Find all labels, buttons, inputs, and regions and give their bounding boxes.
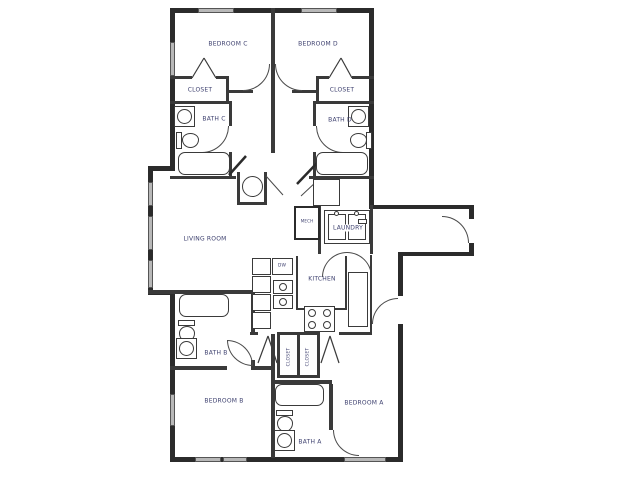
wall xyxy=(398,252,474,256)
room-label-closet-hall-1: CLOSET xyxy=(287,348,292,367)
wall xyxy=(271,8,275,153)
window xyxy=(195,457,221,462)
bathtub-d xyxy=(316,152,368,175)
mech-chase xyxy=(313,179,340,206)
wall xyxy=(264,172,267,205)
room-label-bath-b: BATH B xyxy=(204,350,227,357)
room-label-bath-c: BATH C xyxy=(202,116,225,123)
wall xyxy=(313,101,316,126)
wall xyxy=(297,334,300,378)
window xyxy=(170,42,175,76)
water-heater xyxy=(242,176,263,197)
door-arc xyxy=(322,252,347,277)
room-label-closet-c: CLOSET xyxy=(188,87,213,94)
wall xyxy=(277,375,320,378)
wall xyxy=(237,172,240,205)
floor-plan: BEDROOM C BEDROOM D CLOSET CLOSET BATH C… xyxy=(0,0,640,480)
entry-door-arc xyxy=(442,216,469,243)
kitchen-cabinet xyxy=(252,294,271,311)
room-label-mech: MECH xyxy=(301,219,314,224)
window xyxy=(198,8,234,13)
counter-edge xyxy=(370,255,372,334)
kitchen-cabinet xyxy=(252,312,271,329)
door-arc xyxy=(333,430,359,456)
counter-edge xyxy=(296,256,298,310)
room-label-bath-d: BATH D xyxy=(328,117,352,124)
burner xyxy=(323,321,331,329)
wall xyxy=(329,384,333,430)
window xyxy=(170,394,175,426)
kitchen-sink-basin xyxy=(279,283,287,291)
room-label-bedroom-c: BEDROOM C xyxy=(208,41,247,48)
window xyxy=(301,8,337,13)
wall xyxy=(469,205,474,219)
washer-knob xyxy=(334,211,339,216)
room-label-bedroom-a: BEDROOM A xyxy=(344,400,383,407)
wall xyxy=(316,101,374,104)
wall xyxy=(277,334,280,378)
window xyxy=(148,260,153,288)
room-label-laundry: LAUNDRY xyxy=(332,225,364,232)
door-arc xyxy=(316,126,343,153)
room-label-bedroom-b: BEDROOM B xyxy=(204,398,243,405)
wall xyxy=(170,292,175,462)
sink-c-basin xyxy=(177,109,192,124)
dryer-knob xyxy=(354,211,359,216)
bathtub-b xyxy=(179,294,229,317)
wall xyxy=(170,366,227,370)
door-arc xyxy=(275,64,302,91)
door-arc xyxy=(243,64,270,91)
laundry-control-panel xyxy=(358,219,367,224)
sink-d-basin xyxy=(351,109,366,124)
wall xyxy=(352,76,374,79)
toilet-d xyxy=(350,133,367,148)
window xyxy=(344,457,386,462)
room-label-bath-a: BATH A xyxy=(298,439,321,446)
sink-b-basin xyxy=(179,341,194,356)
door-arc xyxy=(372,298,398,324)
label-dishwasher: DW xyxy=(278,264,286,269)
refrigerator xyxy=(348,272,368,327)
wall xyxy=(226,90,253,93)
wall xyxy=(398,324,403,462)
bathtub-a xyxy=(275,384,324,406)
window xyxy=(223,457,247,462)
wall xyxy=(398,252,403,296)
room-label-closet-d: CLOSET xyxy=(330,87,355,94)
wall xyxy=(339,332,372,335)
sink-a-basin xyxy=(277,433,292,448)
wall xyxy=(250,332,258,335)
wall xyxy=(251,366,275,370)
kitchen-sink-basin xyxy=(279,298,287,306)
room-label-living-room: LIVING ROOM xyxy=(183,236,226,243)
wall xyxy=(170,101,229,104)
window xyxy=(148,216,153,250)
toilet-c xyxy=(182,133,199,148)
wall xyxy=(148,166,175,171)
wall xyxy=(317,334,320,378)
wall xyxy=(369,205,474,209)
room-label-kitchen: KITCHEN xyxy=(308,276,335,283)
counter-edge xyxy=(345,256,347,310)
wall xyxy=(370,205,373,254)
wall xyxy=(170,176,236,179)
wall xyxy=(170,76,192,79)
wall xyxy=(237,202,267,205)
kitchen-cabinet xyxy=(252,276,271,293)
window xyxy=(148,182,153,206)
burner xyxy=(323,309,331,317)
wall xyxy=(229,101,232,126)
kitchen-cabinet xyxy=(252,258,271,275)
bathtub-c xyxy=(178,152,230,175)
door-arc xyxy=(202,126,229,153)
burner xyxy=(308,321,316,329)
room-label-bedroom-d: BEDROOM D xyxy=(298,41,338,48)
burner xyxy=(308,309,316,317)
room-label-closet-hall-2: CLOSET xyxy=(306,348,311,367)
wall xyxy=(170,8,175,170)
